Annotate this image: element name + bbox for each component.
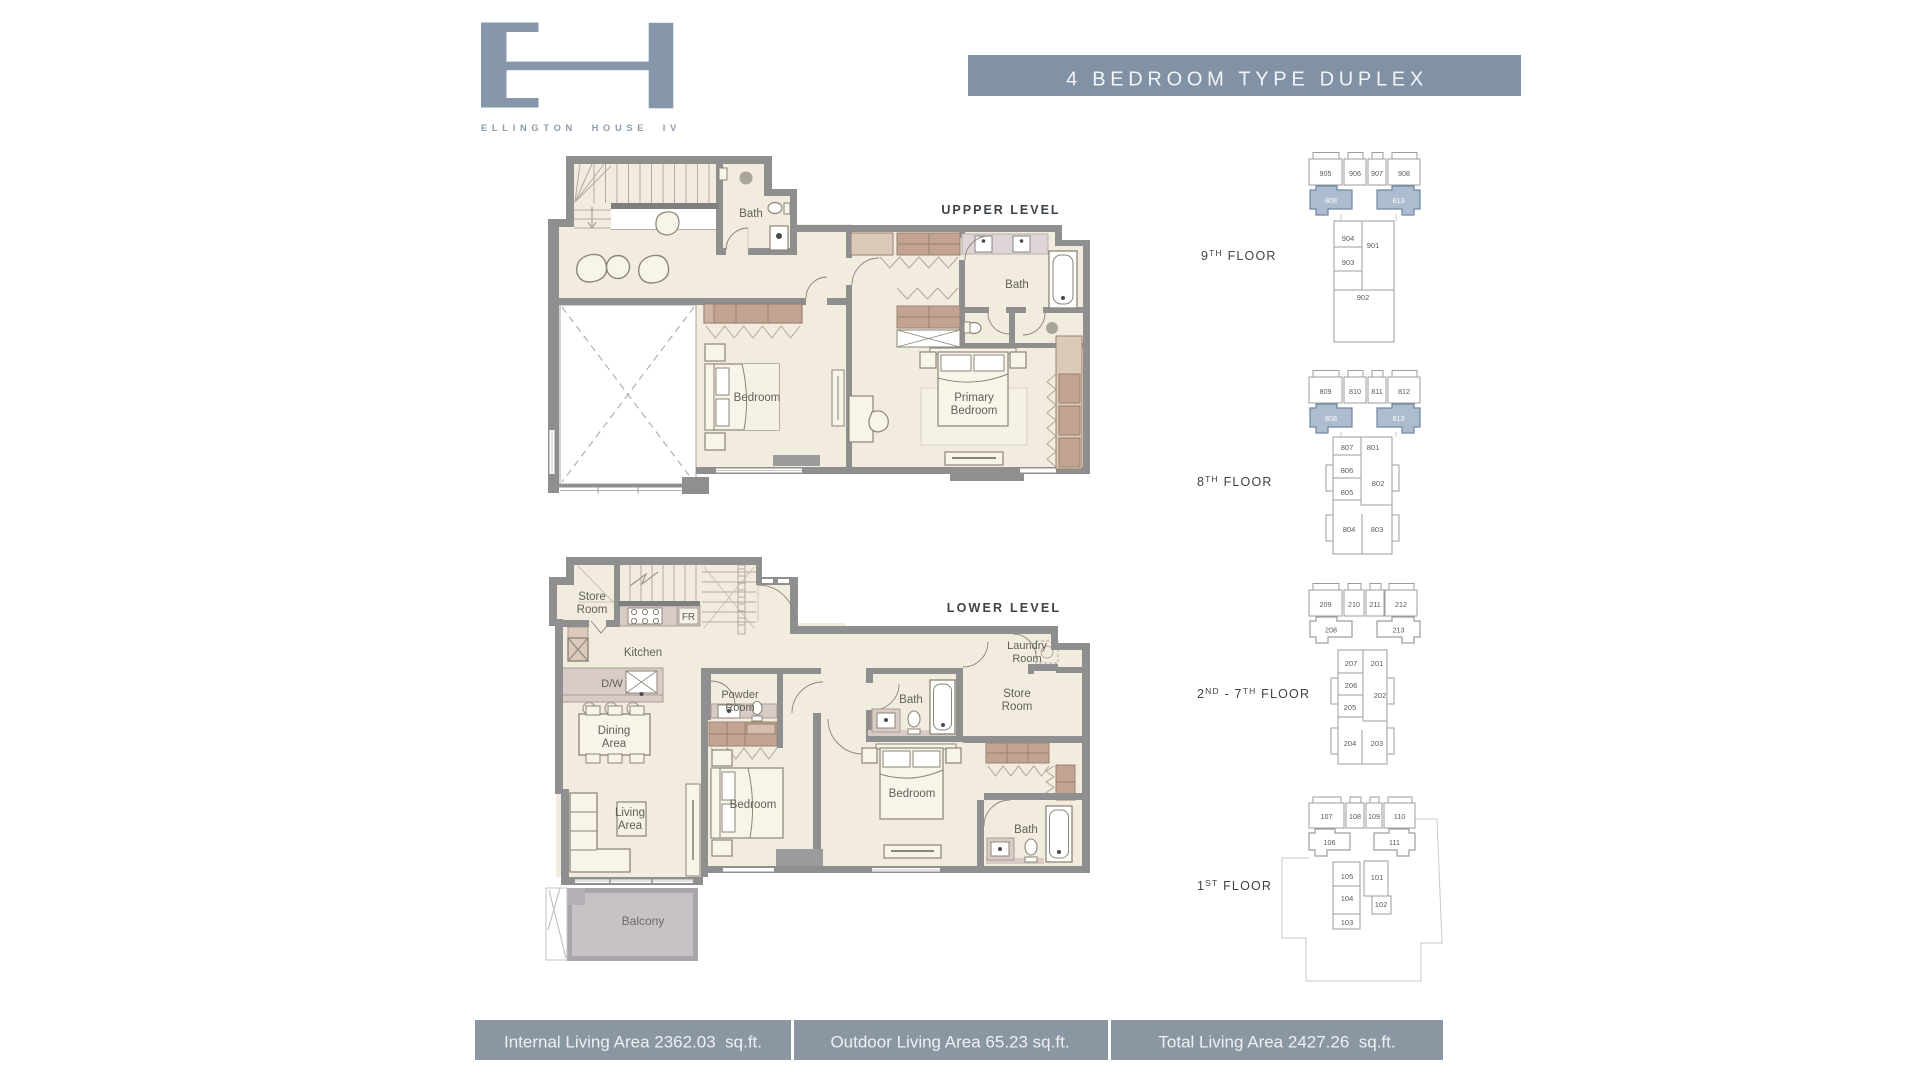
svg-text:813: 813 <box>1393 414 1405 423</box>
svg-text:801: 801 <box>1367 443 1380 452</box>
svg-text:Living: Living <box>615 807 645 819</box>
svg-text:901: 901 <box>1367 241 1380 250</box>
svg-text:LOWER LEVEL: LOWER LEVEL <box>947 601 1061 615</box>
svg-text:109: 109 <box>1368 812 1380 821</box>
svg-text:813: 813 <box>1393 196 1405 205</box>
svg-text:101: 101 <box>1371 873 1384 882</box>
svg-text:202: 202 <box>1374 691 1387 700</box>
svg-text:Store: Store <box>578 591 606 603</box>
svg-text:212: 212 <box>1395 600 1407 609</box>
svg-text:905: 905 <box>1320 169 1332 178</box>
svg-text:902: 902 <box>1357 293 1370 302</box>
svg-text:208: 208 <box>1325 626 1337 635</box>
svg-text:Room: Room <box>725 702 754 714</box>
svg-text:111: 111 <box>1389 838 1400 847</box>
svg-text:Dining: Dining <box>598 725 631 737</box>
svg-text:805: 805 <box>1341 488 1354 497</box>
svg-text:802: 802 <box>1372 479 1385 488</box>
svg-text:Room: Room <box>1012 653 1041 665</box>
svg-text:D/W: D/W <box>601 678 623 690</box>
svg-text:Bedroom: Bedroom <box>951 405 998 417</box>
svg-text:Bath: Bath <box>739 208 763 220</box>
svg-text:201: 201 <box>1371 659 1384 668</box>
svg-text:903: 903 <box>1342 258 1355 267</box>
svg-text:UPPPER LEVEL: UPPPER LEVEL <box>941 203 1060 217</box>
svg-text:204: 204 <box>1344 739 1357 748</box>
svg-text:809: 809 <box>1320 387 1332 396</box>
svg-text:206: 206 <box>1345 681 1358 690</box>
svg-text:107: 107 <box>1321 812 1333 821</box>
svg-text:808: 808 <box>1325 414 1337 423</box>
svg-text:804: 804 <box>1343 525 1356 534</box>
svg-text:211: 211 <box>1369 600 1380 609</box>
svg-text:Bath: Bath <box>1014 824 1038 836</box>
svg-text:811: 811 <box>1371 387 1382 396</box>
svg-text:205: 205 <box>1344 703 1357 712</box>
svg-text:209: 209 <box>1320 600 1332 609</box>
svg-text:Bedroom: Bedroom <box>889 788 936 800</box>
svg-text:Laundry: Laundry <box>1007 640 1047 652</box>
svg-text:Room: Room <box>577 604 608 616</box>
svg-text:808: 808 <box>1325 196 1337 205</box>
svg-text:Kitchen: Kitchen <box>624 647 662 659</box>
svg-text:105: 105 <box>1341 872 1354 881</box>
svg-text:812: 812 <box>1398 387 1410 396</box>
svg-text:906: 906 <box>1349 169 1361 178</box>
svg-text:Total Living Area 2427.26 sq.: Total Living Area 2427.26 sq.ft. <box>1158 1033 1395 1052</box>
svg-text:907: 907 <box>1371 169 1383 178</box>
svg-text:Outdoor Living Area 65.23 sq.f: Outdoor Living Area 65.23 sq.ft. <box>830 1033 1069 1052</box>
svg-text:807: 807 <box>1341 443 1354 452</box>
svg-text:Area: Area <box>618 820 643 832</box>
svg-text:Balcony: Balcony <box>622 914 665 928</box>
svg-text:Bath: Bath <box>899 694 923 706</box>
svg-text:FR: FR <box>682 612 695 623</box>
svg-text:ELLINGTON HOUSE IV: ELLINGTON HOUSE IV <box>481 123 681 134</box>
svg-text:108: 108 <box>1349 812 1361 821</box>
svg-text:803: 803 <box>1371 525 1384 534</box>
svg-text:Powder: Powder <box>721 689 759 701</box>
svg-text:Area: Area <box>602 738 627 750</box>
svg-text:Bedroom: Bedroom <box>734 392 781 404</box>
svg-text:Bath: Bath <box>1005 279 1029 291</box>
svg-text:Room: Room <box>1002 701 1033 713</box>
svg-text:103: 103 <box>1341 918 1354 927</box>
svg-text:102: 102 <box>1375 900 1388 909</box>
svg-text:Internal Living Area 2362.03: Internal Living Area 2362.03 sq.ft. <box>504 1033 762 1052</box>
svg-text:Primary: Primary <box>954 392 994 404</box>
svg-text:806: 806 <box>1341 466 1354 475</box>
svg-text:4 BEDROOM TYPE DUPLEX: 4 BEDROOM TYPE DUPLEX <box>1066 69 1428 91</box>
svg-text:Store: Store <box>1003 688 1031 700</box>
svg-text:Bedroom: Bedroom <box>730 799 777 811</box>
svg-text:904: 904 <box>1342 234 1355 243</box>
svg-text:210: 210 <box>1348 600 1360 609</box>
svg-text:106: 106 <box>1324 838 1336 847</box>
svg-text:207: 207 <box>1345 659 1358 668</box>
svg-text:213: 213 <box>1393 626 1405 635</box>
svg-text:810: 810 <box>1349 387 1361 396</box>
svg-text:110: 110 <box>1394 812 1405 821</box>
svg-text:203: 203 <box>1371 739 1384 748</box>
svg-text:908: 908 <box>1398 169 1410 178</box>
svg-text:104: 104 <box>1341 894 1354 903</box>
